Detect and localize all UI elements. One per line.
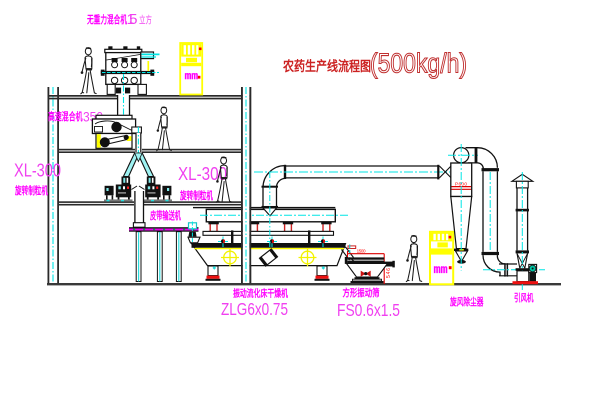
svg-text:㎜: ㎜ — [434, 264, 448, 276]
svg-text:ZLG6x0.75: ZLG6x0.75 — [221, 299, 288, 319]
svg-text:旋转制粒机: 旋转制粒机 — [14, 184, 48, 197]
svg-text:(500kg/h): (500kg/h) — [370, 48, 467, 79]
svg-text:皮带输送机: 皮带输送机 — [149, 209, 181, 222]
svg-text:旋转制粒机: 旋转制粒机 — [179, 189, 213, 202]
svg-text:农药生产线流程图: 农药生产线流程图 — [282, 58, 371, 74]
svg-text:无重力混合机: 无重力混合机 — [86, 13, 127, 26]
svg-text:546: 546 — [386, 268, 392, 278]
svg-text:1.5: 1.5 — [127, 11, 138, 28]
svg-text:立方: 立方 — [139, 14, 152, 27]
svg-text:㎜: ㎜ — [185, 71, 199, 82]
svg-text:XL-300: XL-300 — [14, 161, 61, 181]
svg-text:高速混合机: 高速混合机 — [48, 110, 83, 123]
svg-text:FS0.6x1.5: FS0.6x1.5 — [337, 300, 400, 320]
svg-text:1500: 1500 — [357, 249, 366, 254]
svg-text:引风机: 引风机 — [514, 292, 534, 305]
svg-text:旋风除尘器: 旋风除尘器 — [449, 296, 484, 309]
svg-text:方形振动筛: 方形振动筛 — [343, 287, 380, 300]
